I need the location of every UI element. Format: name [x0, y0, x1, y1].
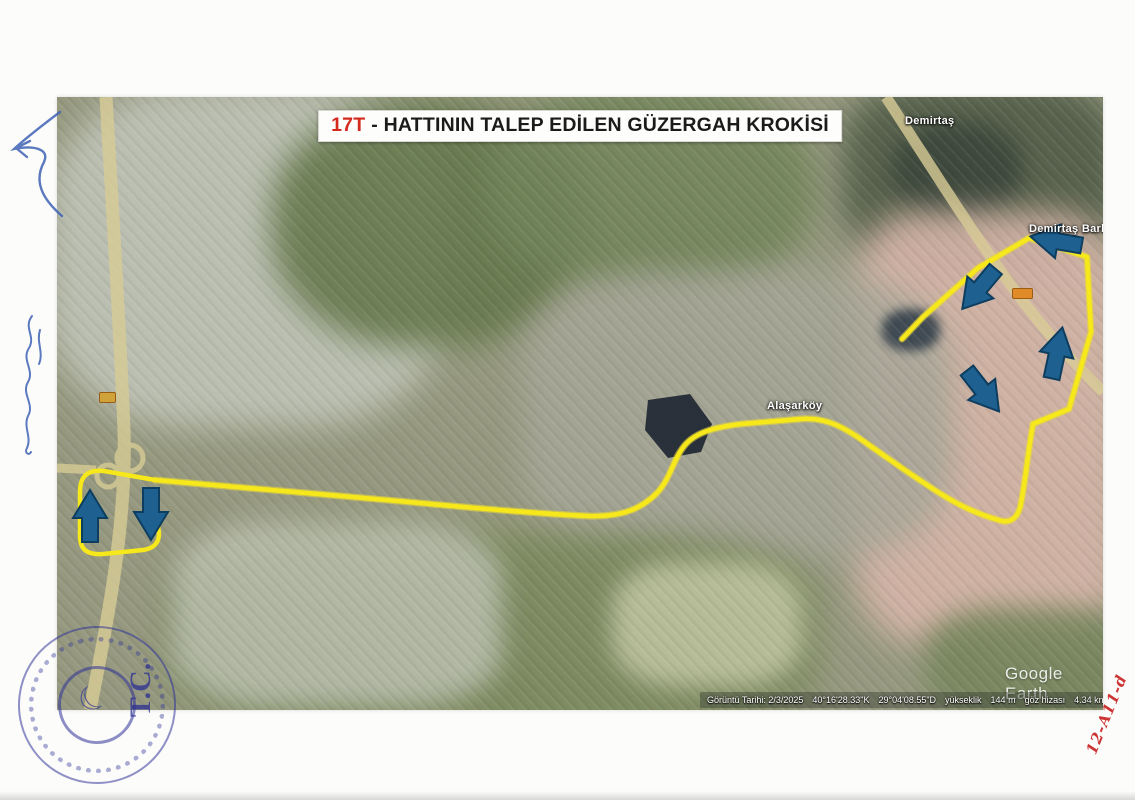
- interchange-loop: [97, 465, 119, 487]
- status-elevation-value: 144 m: [991, 695, 1016, 705]
- status-eye-alt-value: 4.34 km: [1074, 695, 1103, 705]
- route-glow: [155, 238, 1091, 521]
- place-label-alasarkoy: Alaşarköy: [767, 400, 822, 412]
- highway-left-branch: [57, 468, 96, 470]
- satellite-map: Demirtaş Demirtaş Barb Alaşarköy Google …: [57, 97, 1103, 710]
- handwritten-checkmark: [16, 141, 30, 157]
- place-label-demirtas-barb: Demirtaş Barb: [1029, 223, 1103, 235]
- scan-edge-shadow: [0, 791, 1135, 800]
- direction-arrows: [73, 220, 1085, 542]
- status-latitude: 40°16'28.33"K: [812, 695, 869, 705]
- stamp-tc-text: T.C.: [123, 663, 157, 717]
- handwritten-note: [26, 316, 32, 454]
- title-text: - HATTININ TALEP EDİLEN GÜZERGAH KROKİSİ: [371, 114, 829, 136]
- status-elevation-label: yükseklik: [945, 695, 982, 705]
- route-line: [155, 238, 1091, 521]
- map-title: 17T- HATTININ TALEP EDİLEN GÜZERGAH KROK…: [318, 110, 842, 142]
- place-label-demirtas: Demirtaş: [905, 115, 954, 127]
- status-longitude: 29°04'08.55"D: [878, 695, 936, 705]
- status-image-date: Görüntü Tarihi: 2/3/2025: [707, 695, 803, 705]
- status-eye-alt-label: göz hizası: [1025, 695, 1066, 705]
- road-shield-icon: [1012, 288, 1033, 299]
- handwritten-checkmark: [14, 112, 62, 216]
- status-bar: Görüntü Tarihi: 2/3/2025 40°16'28.33"K 2…: [700, 692, 1103, 708]
- scanned-route-sketch-page: Demirtaş Demirtaş Barb Alaşarköy Google …: [0, 0, 1135, 800]
- direction-arrow-icon: [954, 360, 1013, 422]
- route-overlay: [57, 97, 1103, 710]
- requested-route: [80, 238, 1091, 554]
- line-number: 17T: [331, 114, 365, 136]
- highway-roads: [57, 97, 1103, 710]
- direction-arrow-icon: [134, 488, 168, 540]
- handwritten-note: [39, 330, 41, 364]
- road-shield-icon: [99, 392, 116, 403]
